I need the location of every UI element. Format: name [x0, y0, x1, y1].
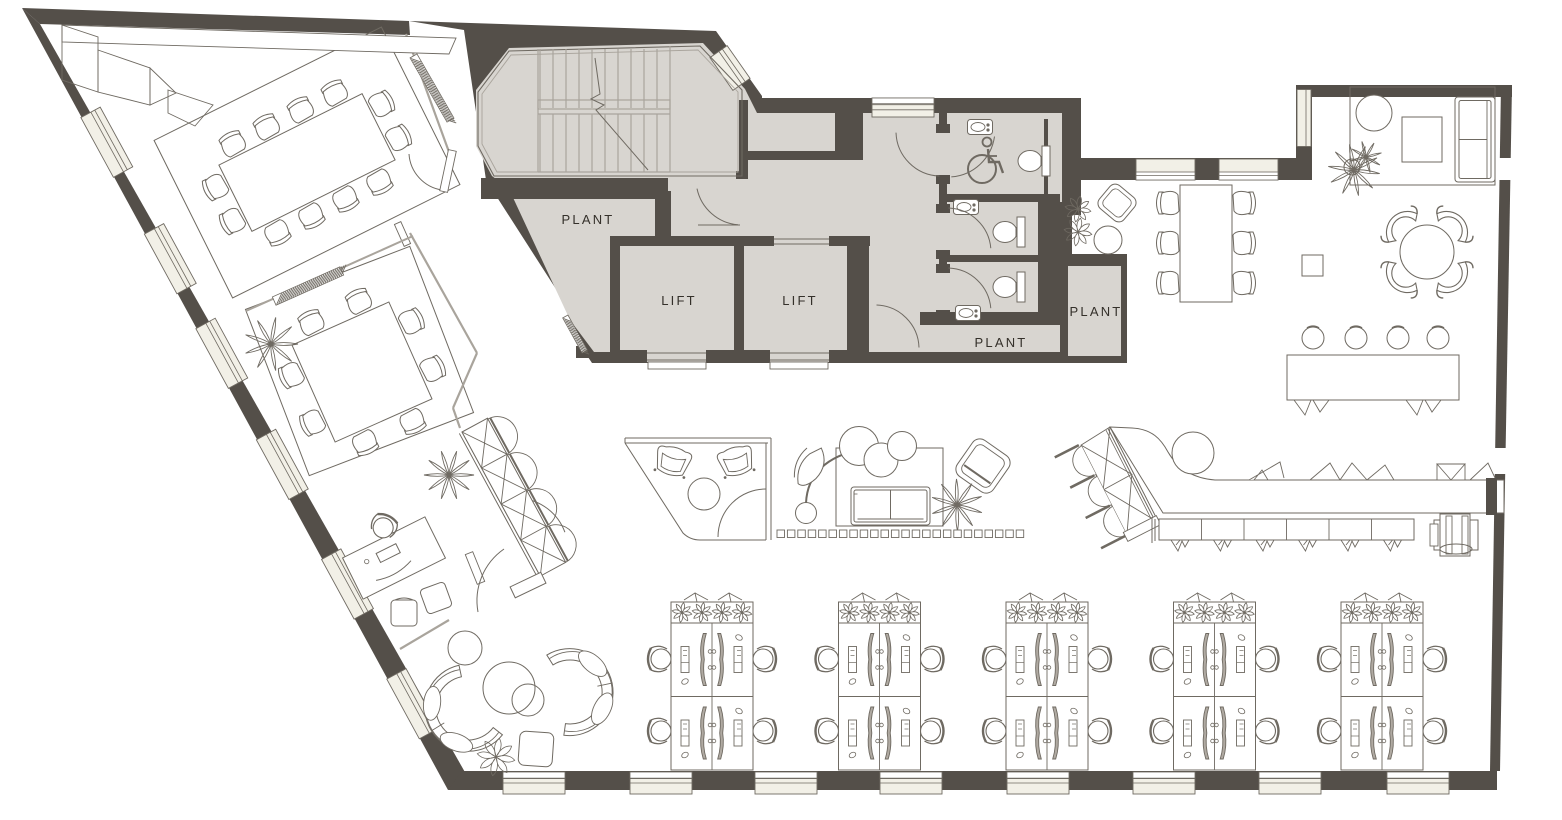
svg-text:PLANT: PLANT	[975, 335, 1028, 350]
svg-text:LIFT: LIFT	[661, 293, 697, 308]
svg-text:LIFT: LIFT	[782, 293, 818, 308]
svg-text:PLANT: PLANT	[562, 212, 615, 227]
svg-text:PLANT: PLANT	[1070, 304, 1123, 319]
